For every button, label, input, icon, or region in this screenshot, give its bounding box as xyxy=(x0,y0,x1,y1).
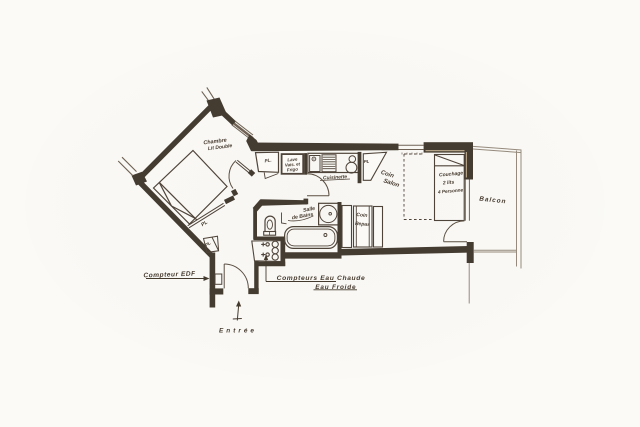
svg-text:Compteurs Eau Chaude: Compteurs Eau Chaude xyxy=(277,275,366,282)
svg-text:Coin: Coin xyxy=(356,212,368,219)
svg-text:2 lits: 2 lits xyxy=(442,179,455,186)
svg-text:Entrée: Entrée xyxy=(219,328,257,335)
svg-text:Frigo: Frigo xyxy=(287,167,299,173)
svg-text:PL.: PL. xyxy=(264,158,272,164)
svg-text:PL: PL xyxy=(364,159,370,164)
